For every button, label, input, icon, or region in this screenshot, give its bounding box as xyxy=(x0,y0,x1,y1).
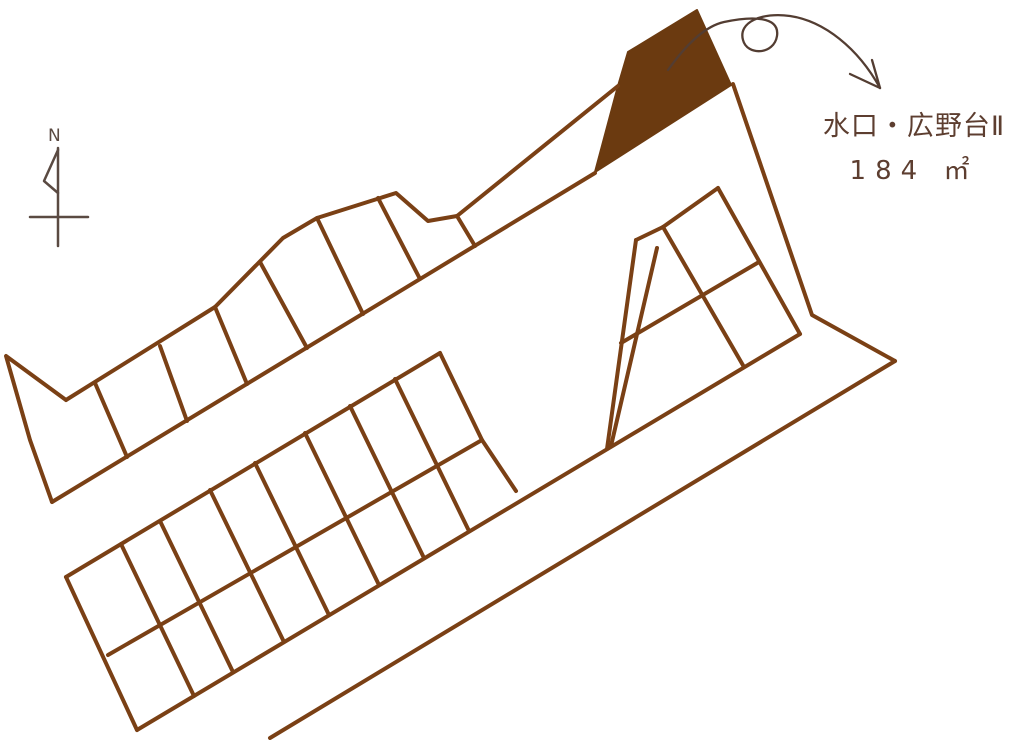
north-label: N xyxy=(48,126,61,146)
lower-strip-dividers xyxy=(305,433,379,585)
upper-strip-dividers xyxy=(215,307,247,384)
right-block-grid xyxy=(636,227,663,240)
north-indicator xyxy=(44,150,58,193)
parcel-name: 水口・広野台Ⅱ xyxy=(800,104,1024,143)
upper-strip-dividers xyxy=(457,216,475,246)
right-block-grid xyxy=(663,188,718,227)
lower-strip-dividers xyxy=(210,490,284,642)
upper-strip-dividers xyxy=(160,346,187,421)
upper-strip-outline xyxy=(66,193,457,400)
lower-strip-outline xyxy=(66,577,137,730)
upper-strip-outline xyxy=(52,173,595,502)
lower-strip-dividers xyxy=(255,463,329,615)
upper-strip-dividers xyxy=(317,218,363,314)
highlighted-lot xyxy=(595,10,731,172)
triangle-lot xyxy=(607,240,636,449)
upper-strip-dividers xyxy=(95,383,127,457)
triangle-lot xyxy=(611,248,657,446)
upper-strip-dividers xyxy=(260,262,307,348)
site-plan-page: N 水口・広野台Ⅱ 184 ㎡ xyxy=(0,0,1024,740)
lower-strip-outline xyxy=(440,353,516,491)
upper-strip-outline xyxy=(6,356,66,502)
right-block-grid xyxy=(663,227,744,367)
parcel-label: 水口・広野台Ⅱ 184 ㎡ xyxy=(800,104,1024,187)
parcel-area: 184 ㎡ xyxy=(800,150,1024,187)
upper-strip-outline xyxy=(457,86,618,216)
